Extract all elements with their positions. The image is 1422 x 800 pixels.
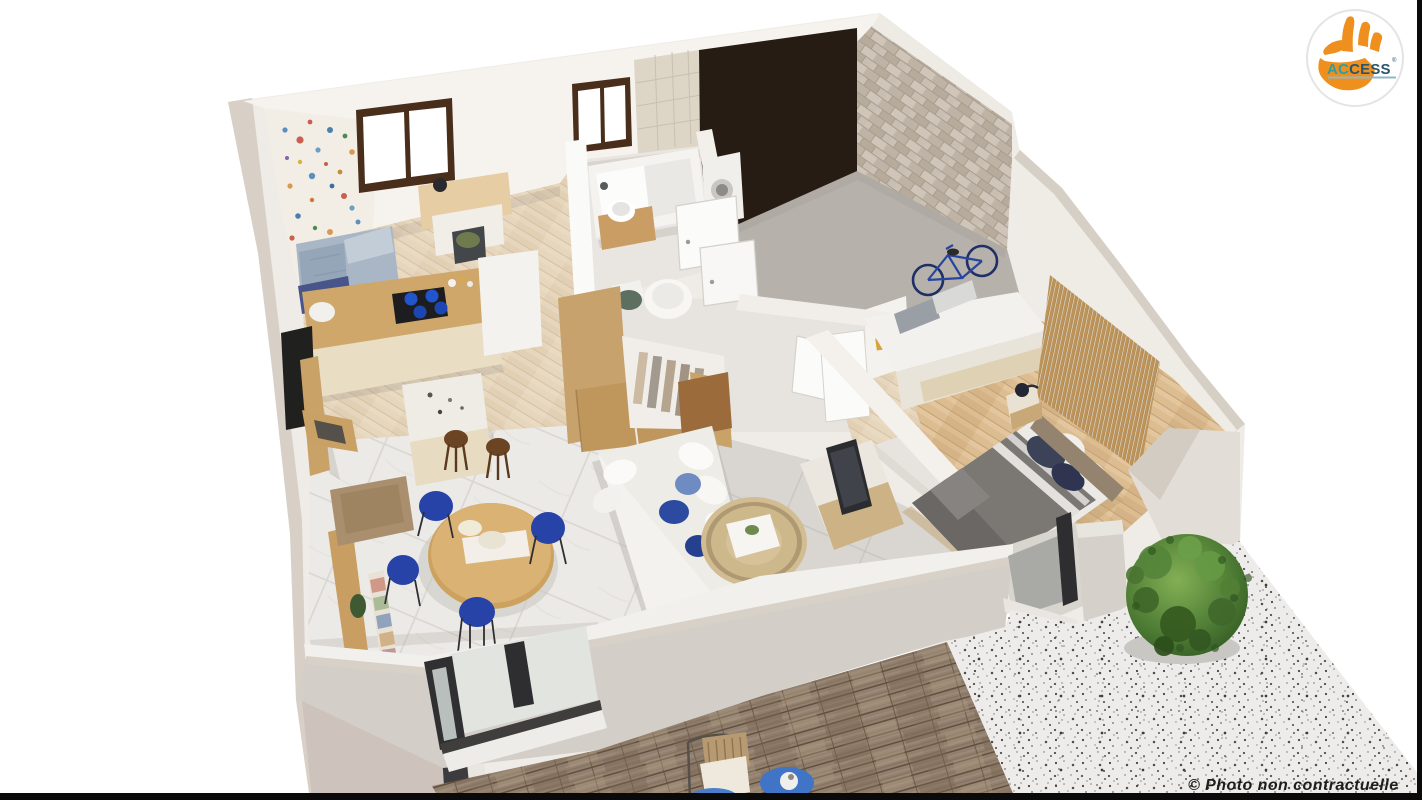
svg-text:© Photo non contractuelle: © Photo non contractuelle [1188,777,1399,794]
svg-text:®: ® [1392,57,1397,64]
svg-text:ACCESS: ACCESS [1327,61,1391,78]
